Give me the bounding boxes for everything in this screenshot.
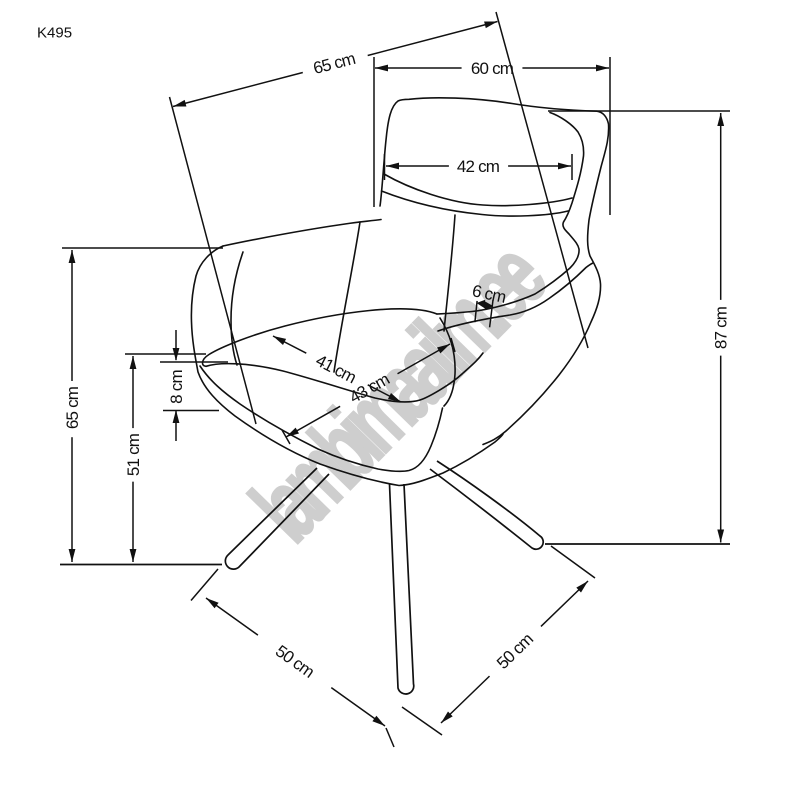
svg-text:65 cm: 65 cm [63,386,82,429]
svg-text:60 cm: 60 cm [471,59,514,78]
svg-text:51 cm: 51 cm [124,433,143,476]
svg-text:87 cm: 87 cm [712,306,731,349]
svg-text:K495: K495 [37,25,72,42]
svg-text:42 cm: 42 cm [457,157,500,176]
svg-text:8 cm: 8 cm [167,370,186,404]
